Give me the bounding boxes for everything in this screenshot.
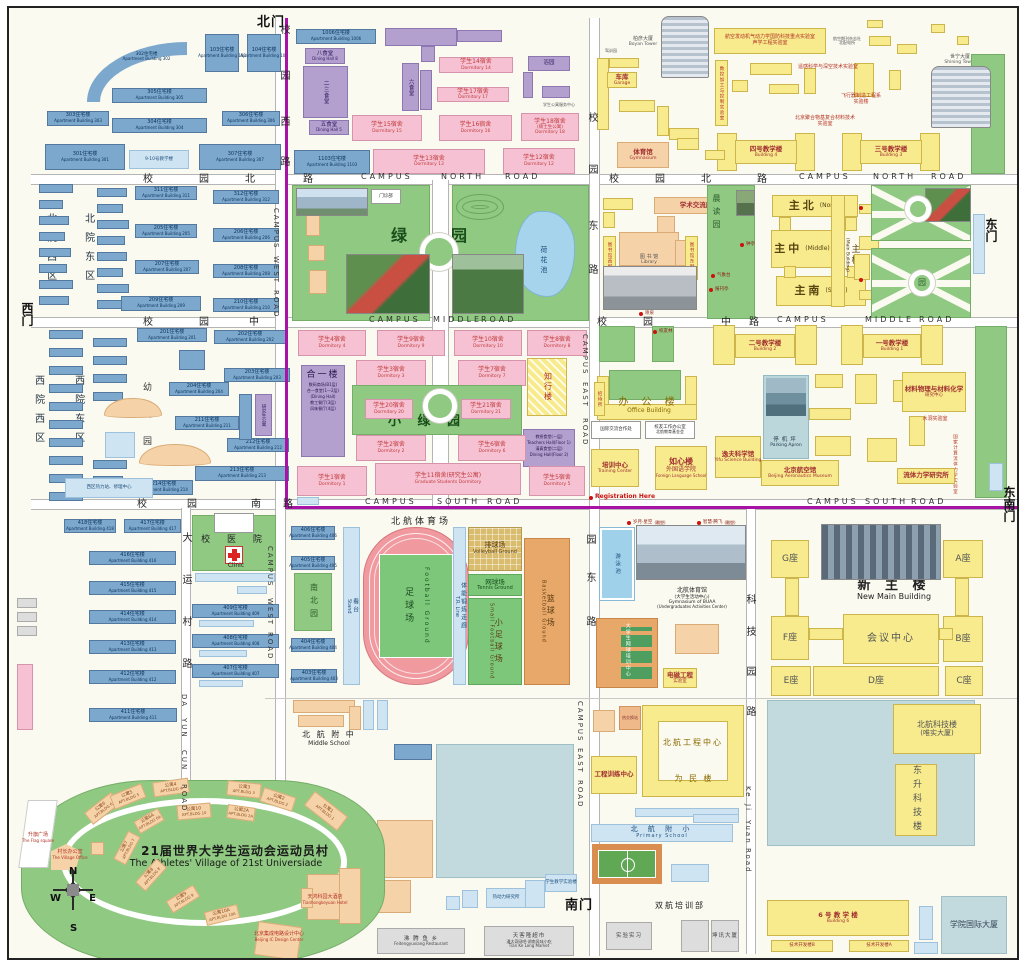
- map-feature-blue: [49, 384, 83, 393]
- map-feature-blue: [49, 348, 83, 357]
- map-feature-purple: 研究生公寓: [255, 394, 272, 436]
- map-feature-lblue: [462, 890, 478, 908]
- tennis-ground: 网球场Tennis Ground: [468, 574, 522, 596]
- map-feature-lblue: [363, 700, 374, 730]
- road-label: SOUTH: [437, 497, 480, 506]
- foreign-language-school: 如心楼外国语学院Foreign Language School: [655, 446, 707, 490]
- map-feature-yellow: [889, 70, 901, 90]
- road-label: ROAD: [581, 418, 589, 446]
- compass-star-icon: [63, 880, 83, 900]
- map-feature-purple: [420, 70, 432, 110]
- engineering-center: 北航工程中心: [657, 736, 729, 750]
- road-label: CAMPUS: [266, 546, 274, 588]
- map-feature-blue: 209住宅楼Apartment Building 209: [121, 296, 201, 311]
- map-feature-lblue: [446, 896, 460, 910]
- yifu-science-building: 逸夫科学馆Yifu Science Building: [715, 436, 761, 478]
- map-feature-label: Middle School: [293, 740, 365, 749]
- map-feature-blue: 307住宅楼Apartment Building 307: [199, 144, 281, 170]
- engineering-training-center: 工程训练中心: [591, 756, 637, 794]
- map-feature-purple: [385, 28, 457, 46]
- map-canvas: 302住宅楼Apartment Building 302103住宅楼Apartm…: [7, 6, 1019, 960]
- map-feature-yellow: [795, 133, 815, 171]
- map-feature-dot: 气象台: [711, 272, 745, 280]
- map-feature-peach: [349, 706, 361, 730]
- road-label: 村: [178, 616, 193, 626]
- map-feature-gray: [681, 920, 709, 952]
- map-feature-yellow: 流体力学研究所: [897, 468, 955, 484]
- map-feature-label: 北京聚合物基复合材料技术实验室: [781, 114, 869, 130]
- campus-route-line-0: [285, 18, 288, 508]
- compass-west: W: [50, 893, 61, 904]
- map-feature-pink: 学生13宿舍Dormitory 13: [373, 149, 485, 174]
- map-feature-peach: [309, 270, 327, 294]
- building-3: 三号教学楼Building 3: [860, 140, 922, 164]
- village-office: 村长办公室The Village Office: [49, 848, 91, 862]
- map-feature-pink: 学生14宿舍Dormitory 14: [439, 57, 513, 73]
- road-label: EAST: [581, 382, 589, 408]
- campus-map: 302住宅楼Apartment Building 302103住宅楼Apartm…: [0, 0, 1024, 965]
- map-feature-yellow: [955, 578, 969, 616]
- map-feature-blue: 206住宅楼Apartment Building 206: [213, 228, 279, 242]
- dongsheng-building: 东升科技楼: [895, 764, 937, 836]
- road-label: 路: [749, 313, 759, 328]
- map-feature-photo: [736, 190, 755, 216]
- map-feature-blue: [93, 460, 127, 469]
- parking-apron: 停机坪Parking Apron: [763, 375, 809, 459]
- map-feature-blue: 417住宅楼Apartment Building 417: [124, 519, 181, 533]
- map-feature-peach: [91, 842, 104, 855]
- map-feature-blue: 301住宅楼Apartment Building 301: [45, 144, 125, 170]
- map-feature-yellow: [732, 80, 748, 92]
- map-feature-yellow: [619, 100, 655, 112]
- road-label: 校: [143, 313, 153, 328]
- map-feature-blue: [39, 296, 69, 305]
- road-label: 校: [143, 170, 153, 185]
- map-feature-pink: 学生15宿舍Dormitory 15: [352, 115, 422, 141]
- road-label: ROAD: [505, 172, 540, 181]
- map-feature-blue: 312住宅楼Apartment Building 312: [213, 190, 279, 204]
- road-label: 路: [584, 264, 599, 274]
- flag-square: 升旗广场The Flag square: [17, 830, 59, 846]
- map-feature-pink: 学生4宿舍Dormitory 4: [298, 330, 366, 356]
- buaa-gymnasium: 北航体育馆(大学生活动中心)Gymnasium of BUAA(Undergra…: [639, 582, 745, 616]
- map-feature-lblue: [199, 650, 247, 657]
- map-feature-lblue: 9·10号教学楼: [129, 150, 189, 169]
- new-main-e: E座: [771, 666, 811, 696]
- map-feature-blue: 406住宅楼Apartment Building 406: [291, 526, 335, 540]
- map-feature-white: [214, 513, 254, 533]
- map-feature-blue: [239, 394, 252, 440]
- road-label: 东: [582, 572, 597, 582]
- campus-route-line-1: [285, 506, 1017, 509]
- west-yard-east: 西院东区: [71, 338, 85, 488]
- map-feature-yellow: 数控加工与控制实验室: [715, 60, 728, 126]
- map-feature-photo: [452, 254, 524, 314]
- road-label: 中: [721, 313, 731, 328]
- road-label: CAMPUS: [361, 172, 413, 181]
- map-feature-yellow: [609, 58, 639, 68]
- middle-school: 北 航 附 中: [293, 730, 365, 740]
- compass-east: E: [89, 893, 96, 904]
- library-photo: [603, 266, 697, 310]
- road-label: ROAD: [180, 784, 188, 812]
- map-feature-label: 302住宅楼Apartment Building 302: [104, 50, 189, 64]
- map-feature-yellow: 招待所: [594, 382, 605, 416]
- map-feature-yellow: [855, 374, 877, 404]
- road-label: 路: [757, 170, 767, 185]
- road-label: Road: [744, 848, 752, 874]
- green-garden-label: 绿: [389, 226, 409, 246]
- building-4: 四号教学楼Building 4: [735, 140, 797, 164]
- map-feature-blue: [97, 284, 129, 293]
- map-feature-white: 国际交流合作处: [591, 421, 641, 439]
- road-label: ROAD: [481, 315, 516, 324]
- map-feature-pink: 学生3宿舍Dormitory 3: [356, 360, 426, 386]
- road-label: NORTH: [441, 172, 484, 181]
- map-feature-peach: [593, 710, 615, 732]
- map-feature-blue: 208住宅楼Apartment Building 208: [213, 264, 279, 278]
- map-feature-yellow: [769, 84, 799, 94]
- map-feature-label: Clinic: [211, 562, 261, 571]
- library: 图 书 馆Library: [623, 254, 675, 266]
- map-feature-lblue: [199, 620, 254, 627]
- map-feature-ring: [905, 196, 931, 222]
- road-label: 校: [137, 495, 147, 510]
- map-feature-label: 飞行器制造工程系实验楼: [837, 92, 885, 108]
- road-label: CUN: [180, 750, 188, 771]
- road-label: 路: [283, 495, 293, 510]
- map-feature-gray: 坤讯大厦: [711, 920, 739, 952]
- map-feature-blue: 412住宅楼Apartment Building 412: [89, 670, 176, 684]
- map-feature-blue: [39, 280, 73, 289]
- map-feature-blue: [39, 248, 71, 257]
- road-label: ROAD: [911, 497, 946, 506]
- map-feature-blue: 403住宅楼Apartment Building 403: [291, 669, 337, 683]
- clinic: 校 医 院: [199, 534, 271, 546]
- map-feature-blue: [49, 402, 83, 411]
- map-feature-blue: [97, 268, 123, 277]
- map-feature-blue: 404住宅楼Apartment Building 404: [291, 638, 335, 652]
- map-feature-label: 驾训园: [595, 46, 627, 56]
- garage: 车库Garage: [607, 72, 637, 88]
- map-feature-blue: 213住宅楼Apartment Building 213: [195, 466, 289, 481]
- map-feature-blue: 418住宅楼Apartment Building 418: [64, 519, 116, 533]
- market: 天客隆超市漫太奇网吧·湖南风味小吃Tian Ke Long Market: [484, 926, 574, 956]
- map-feature-pink: 学生18宿舍(硕士生公寓)Dormitory 18: [521, 113, 579, 141]
- road-label: 园: [655, 170, 665, 185]
- map-feature-blue: [93, 374, 127, 383]
- weimin-building: 为 民 楼: [669, 772, 719, 786]
- map-feature-yellow: [867, 20, 883, 28]
- road-label: ROAD: [576, 780, 584, 808]
- map-feature-blue: 405住宅楼Apartment Building 405: [291, 556, 335, 570]
- map-feature-blue: [39, 232, 65, 241]
- map-feature-purple: [457, 30, 502, 42]
- map-feature-blue: [394, 744, 432, 760]
- map-feature-pink: 学生17宿舍Dormitory 17: [437, 87, 509, 102]
- building-2: 二号教学楼Building 2: [735, 334, 795, 358]
- compass-south: S: [70, 923, 77, 934]
- map-feature-blue: 411住宅楼Apartment Building 411: [89, 708, 177, 722]
- road-label: 东: [584, 220, 599, 230]
- map-feature-pink: 学生8宿舍Dormitory 8: [527, 330, 587, 356]
- road-label: Ji: [744, 804, 752, 812]
- map-feature-lblue: [297, 497, 319, 505]
- road-label: 北: [245, 170, 255, 185]
- compass-rose: N W E S: [50, 866, 96, 934]
- village-title: 21届世界大学生运动会运动员村: [104, 845, 366, 858]
- map-feature-dot: [859, 276, 867, 284]
- road-label: CAMPUS: [807, 497, 859, 506]
- dining-hall-5: 五食堂Dining Hall 5: [309, 120, 349, 135]
- road-label: 校: [609, 170, 619, 185]
- building-6: 6 号 教 学 楼Building 6: [767, 900, 909, 936]
- map-feature-dot: 报刊亭: [709, 286, 743, 294]
- road-8: [265, 698, 1017, 699]
- map-feature-yellow: [809, 408, 851, 420]
- map-feature-blue: [39, 216, 69, 225]
- map-feature-yellow: [957, 36, 969, 45]
- south-gate: 南门: [565, 894, 593, 913]
- map-feature-pink: 学生9宿舍Dormitory 9: [377, 330, 445, 356]
- road-label: MIDDLE: [865, 315, 914, 324]
- map-feature-blue: [49, 438, 83, 447]
- road-label: 园: [276, 70, 291, 80]
- map-feature-ring: 园: [909, 270, 935, 296]
- road-label: CAMPUS: [777, 315, 829, 324]
- road-label: CAMPUS: [369, 315, 421, 324]
- map-feature-bgray: [436, 744, 574, 878]
- road-label: 中: [249, 313, 259, 328]
- map-feature-pink: 学生6宿舍Dormitory 6: [458, 435, 526, 461]
- map-feature-yellow: [779, 217, 791, 231]
- map-feature-yellow: [795, 325, 817, 365]
- map-feature-contour: [456, 194, 504, 220]
- map-feature-orange2: 热交换站: [619, 706, 641, 730]
- map-feature-photo: [296, 188, 368, 216]
- map-feature-pink: 学生20宿舍Dormitory 20: [365, 399, 413, 419]
- primary-school-pitch: [592, 844, 662, 884]
- boyan-tower-photo: [661, 16, 709, 78]
- map-feature-blue: [39, 184, 73, 193]
- map-feature-blue: 104住宅楼Apartment Building 104: [247, 34, 281, 72]
- map-feature-blue: 304住宅楼Apartment Building 304: [112, 118, 207, 133]
- map-feature-blue: 204住宅楼Apartment Building 204: [169, 382, 229, 396]
- road-label: 园: [199, 170, 209, 185]
- map-feature-yellow: [920, 133, 940, 171]
- registration-marker: Registration Here: [589, 493, 653, 502]
- primary-school: 北 航 附 小Primary School: [591, 824, 733, 842]
- map-feature-peach: [675, 624, 719, 654]
- map-feature-yellow: [657, 106, 669, 136]
- road-label: 园: [187, 495, 197, 510]
- map-feature-lblue: [919, 906, 933, 940]
- map-feature-blue: [49, 366, 83, 375]
- tennis-training-center: 大学生网球培训中心: [596, 618, 658, 688]
- map-feature-blue: 203住宅楼Apartment Building 203: [224, 368, 290, 382]
- map-feature-blue: [93, 338, 127, 347]
- conference-center: 会议中心: [843, 614, 939, 664]
- map-feature-yellow: 材料物理与材料化学研究中心: [902, 372, 966, 412]
- map-feature-lblue: 看台Stand: [343, 527, 360, 685]
- map-feature-yellow: [931, 24, 945, 33]
- map-feature-blue: 202住宅楼Apartment Building 202: [214, 330, 286, 344]
- road-6: [746, 508, 756, 954]
- map-feature-blue: 416住宅楼Apartment Building 416: [89, 551, 176, 565]
- map-feature-blue: [49, 456, 83, 465]
- map-feature-blue: [49, 330, 83, 339]
- map-feature-yellow: [784, 266, 796, 278]
- map-feature-yellow: [869, 36, 891, 46]
- map-feature-yellow: [750, 63, 792, 75]
- road-label: 西: [276, 116, 291, 126]
- map-feature-peach: [104, 398, 162, 418]
- map-feature-blue: [97, 252, 127, 261]
- dining-hall-6: 六食堂: [402, 63, 419, 111]
- map-feature-yellow: [713, 325, 735, 365]
- map-feature-yellow: 电磁工程实验室: [663, 668, 697, 688]
- road-label: ROAD: [487, 497, 522, 506]
- new-main-f: F座: [771, 616, 809, 660]
- new-main-d: D座: [813, 666, 939, 696]
- map-feature-yellow: [815, 374, 843, 388]
- map-feature-yellow: [939, 628, 953, 640]
- road-label: 路: [582, 616, 597, 626]
- map-feature-label: 晨读园: [709, 190, 722, 236]
- road-label: CAMPUS: [581, 334, 589, 376]
- road-label: Yuan: [744, 820, 752, 845]
- hotel: 天鸿科园大酒店Tianhongkeyuan Hotel: [295, 892, 355, 908]
- map-feature-dot: [859, 204, 867, 212]
- map-feature-yellow: [831, 195, 845, 307]
- map-feature-gray: 实验实习: [606, 922, 652, 950]
- map-feature-blue: 205住宅楼Apartment Building 205: [135, 224, 197, 238]
- map-feature-lblue: [199, 680, 243, 687]
- map-feature-green: 南北园: [294, 573, 332, 631]
- map-feature-peach: [293, 700, 355, 713]
- road-label: ROAD: [931, 172, 966, 181]
- east-gate: 东门: [983, 218, 1000, 242]
- map-feature-purple: [523, 72, 533, 98]
- map-feature-yellow: [841, 325, 863, 365]
- map-feature-purple: [542, 86, 570, 98]
- map-feature-dot: 钟亭: [740, 241, 768, 249]
- road-label: 园: [643, 313, 653, 328]
- map-feature-blue: [179, 350, 205, 370]
- west-gate: 西门: [19, 302, 36, 326]
- map-feature-peach: [298, 715, 344, 727]
- map-feature-blue: 210住宅楼Apartment Building 210: [213, 298, 279, 312]
- dining-hall-2-3: 二·三食堂: [303, 66, 348, 118]
- map-feature-yellow: 技术开发楼B: [771, 940, 833, 952]
- map-feature-dot: 校友林: [653, 328, 689, 336]
- map-feature-lblue: 体能锻炼走廊T.R. Line: [453, 527, 466, 685]
- map-feature-blue: [39, 200, 63, 209]
- map-feature-blue: 413住宅楼Apartment Building 413: [89, 640, 176, 654]
- road-label: CAMPUS: [365, 497, 417, 506]
- road-label: CAMPUS: [799, 172, 851, 181]
- map-feature-lblue: [237, 586, 267, 594]
- map-feature-purple: [421, 46, 435, 62]
- map-feature-yellow: [785, 578, 799, 616]
- map-feature-blue: 311住宅楼Apartment Building 311: [135, 186, 197, 200]
- map-feature-lblue: [914, 942, 938, 954]
- map-feature-pink: [17, 664, 33, 730]
- map-feature-photo: [346, 254, 430, 314]
- map-feature-yellow: [705, 150, 725, 160]
- new-main-g: G座: [771, 540, 809, 578]
- shuanghang-training: 双航培训部: [649, 901, 711, 911]
- map-feature-blue: [97, 188, 127, 197]
- map-feature-lblue: 学生教学实验楼: [545, 874, 577, 892]
- heyi-building: 合一楼数码商场(B1层)合一食堂(1—2层)(Dining Hall)教工餐厅(…: [301, 365, 345, 457]
- map-feature-blue: [39, 264, 67, 273]
- map-feature-peach: [377, 820, 433, 878]
- map-feature-pink: 学生16宿舍Dormitory 16: [439, 115, 512, 141]
- map-feature-pink: 学生1宿舍Dormitory 1: [297, 466, 367, 496]
- road-label: 路: [178, 658, 193, 668]
- road-4: [589, 18, 600, 956]
- map-feature-label: 荷花池: [535, 238, 551, 284]
- road-label: NORTH: [873, 172, 916, 181]
- map-feature-yellow: [809, 628, 843, 640]
- map-feature-pink: 学生7宿舍Dormitory 7: [458, 360, 526, 386]
- map-feature-lblue: [105, 432, 135, 458]
- new-main-c: C座: [945, 666, 983, 696]
- road-label: CAMPUS: [272, 208, 280, 250]
- map-feature-blue: [97, 204, 123, 213]
- north-yard-east: 北院东区: [81, 196, 95, 306]
- map-feature-pink: 学生10宿舍Dormitory 10: [454, 330, 522, 356]
- map-feature-pink: 学生11宿舍(研究生公寓)Graduate Students Dormitory: [375, 463, 521, 495]
- office-building: 办 公 楼Office Building: [607, 396, 691, 416]
- road-label: EAST: [576, 748, 584, 774]
- road-label: CAMPUS: [576, 701, 584, 743]
- map-feature-label: 水洞实验室: [914, 414, 956, 426]
- training-center: 培训中心Training Center: [591, 449, 639, 487]
- map-feature-white: 校友工作办公室北航教育基金会: [645, 421, 695, 439]
- road-label: 园: [584, 164, 599, 174]
- map-feature-gray: [17, 612, 37, 622]
- road-label: 路: [276, 156, 291, 166]
- map-feature-blue: 306住宅楼Apartment Building 306: [222, 111, 280, 126]
- map-feature-lblue: [377, 700, 388, 730]
- road-label: 科: [742, 594, 757, 604]
- main-building-north: 主北(North): [772, 195, 858, 217]
- road-label: WEST: [272, 256, 280, 284]
- map-feature-blue: 211住宅楼Apartment Building 211: [175, 416, 239, 430]
- map-feature-yellow: 技术开发楼A: [849, 940, 909, 952]
- zhixing-building: 知行楼: [527, 358, 567, 416]
- map-feature-label: 遥感科学与深空技术实验室: [789, 60, 867, 76]
- road-label: 路: [303, 170, 313, 185]
- map-feature-gray: [17, 598, 37, 608]
- road-label: 园: [742, 666, 757, 676]
- road-label: 运: [178, 574, 193, 584]
- road-label: 北: [701, 170, 711, 185]
- map-feature-blue: 1006住宅楼Apartment Building 1006: [296, 29, 376, 44]
- shining-tower-photo: [931, 66, 991, 128]
- road-label: 大: [178, 532, 193, 542]
- aeronautics-museum: 北京航空馆Beijing Aeronautics Museum: [761, 460, 839, 486]
- map-feature-yellow: [603, 198, 633, 210]
- west-yard-west: 西院西区: [31, 338, 45, 488]
- map-feature-lblue: 热动力研究所: [486, 888, 526, 908]
- map-feature-label: New Main Building: [837, 593, 951, 602]
- road-label: ROAD: [266, 632, 274, 660]
- map-feature-peach: [308, 245, 325, 261]
- map-feature-yellow: [842, 133, 862, 171]
